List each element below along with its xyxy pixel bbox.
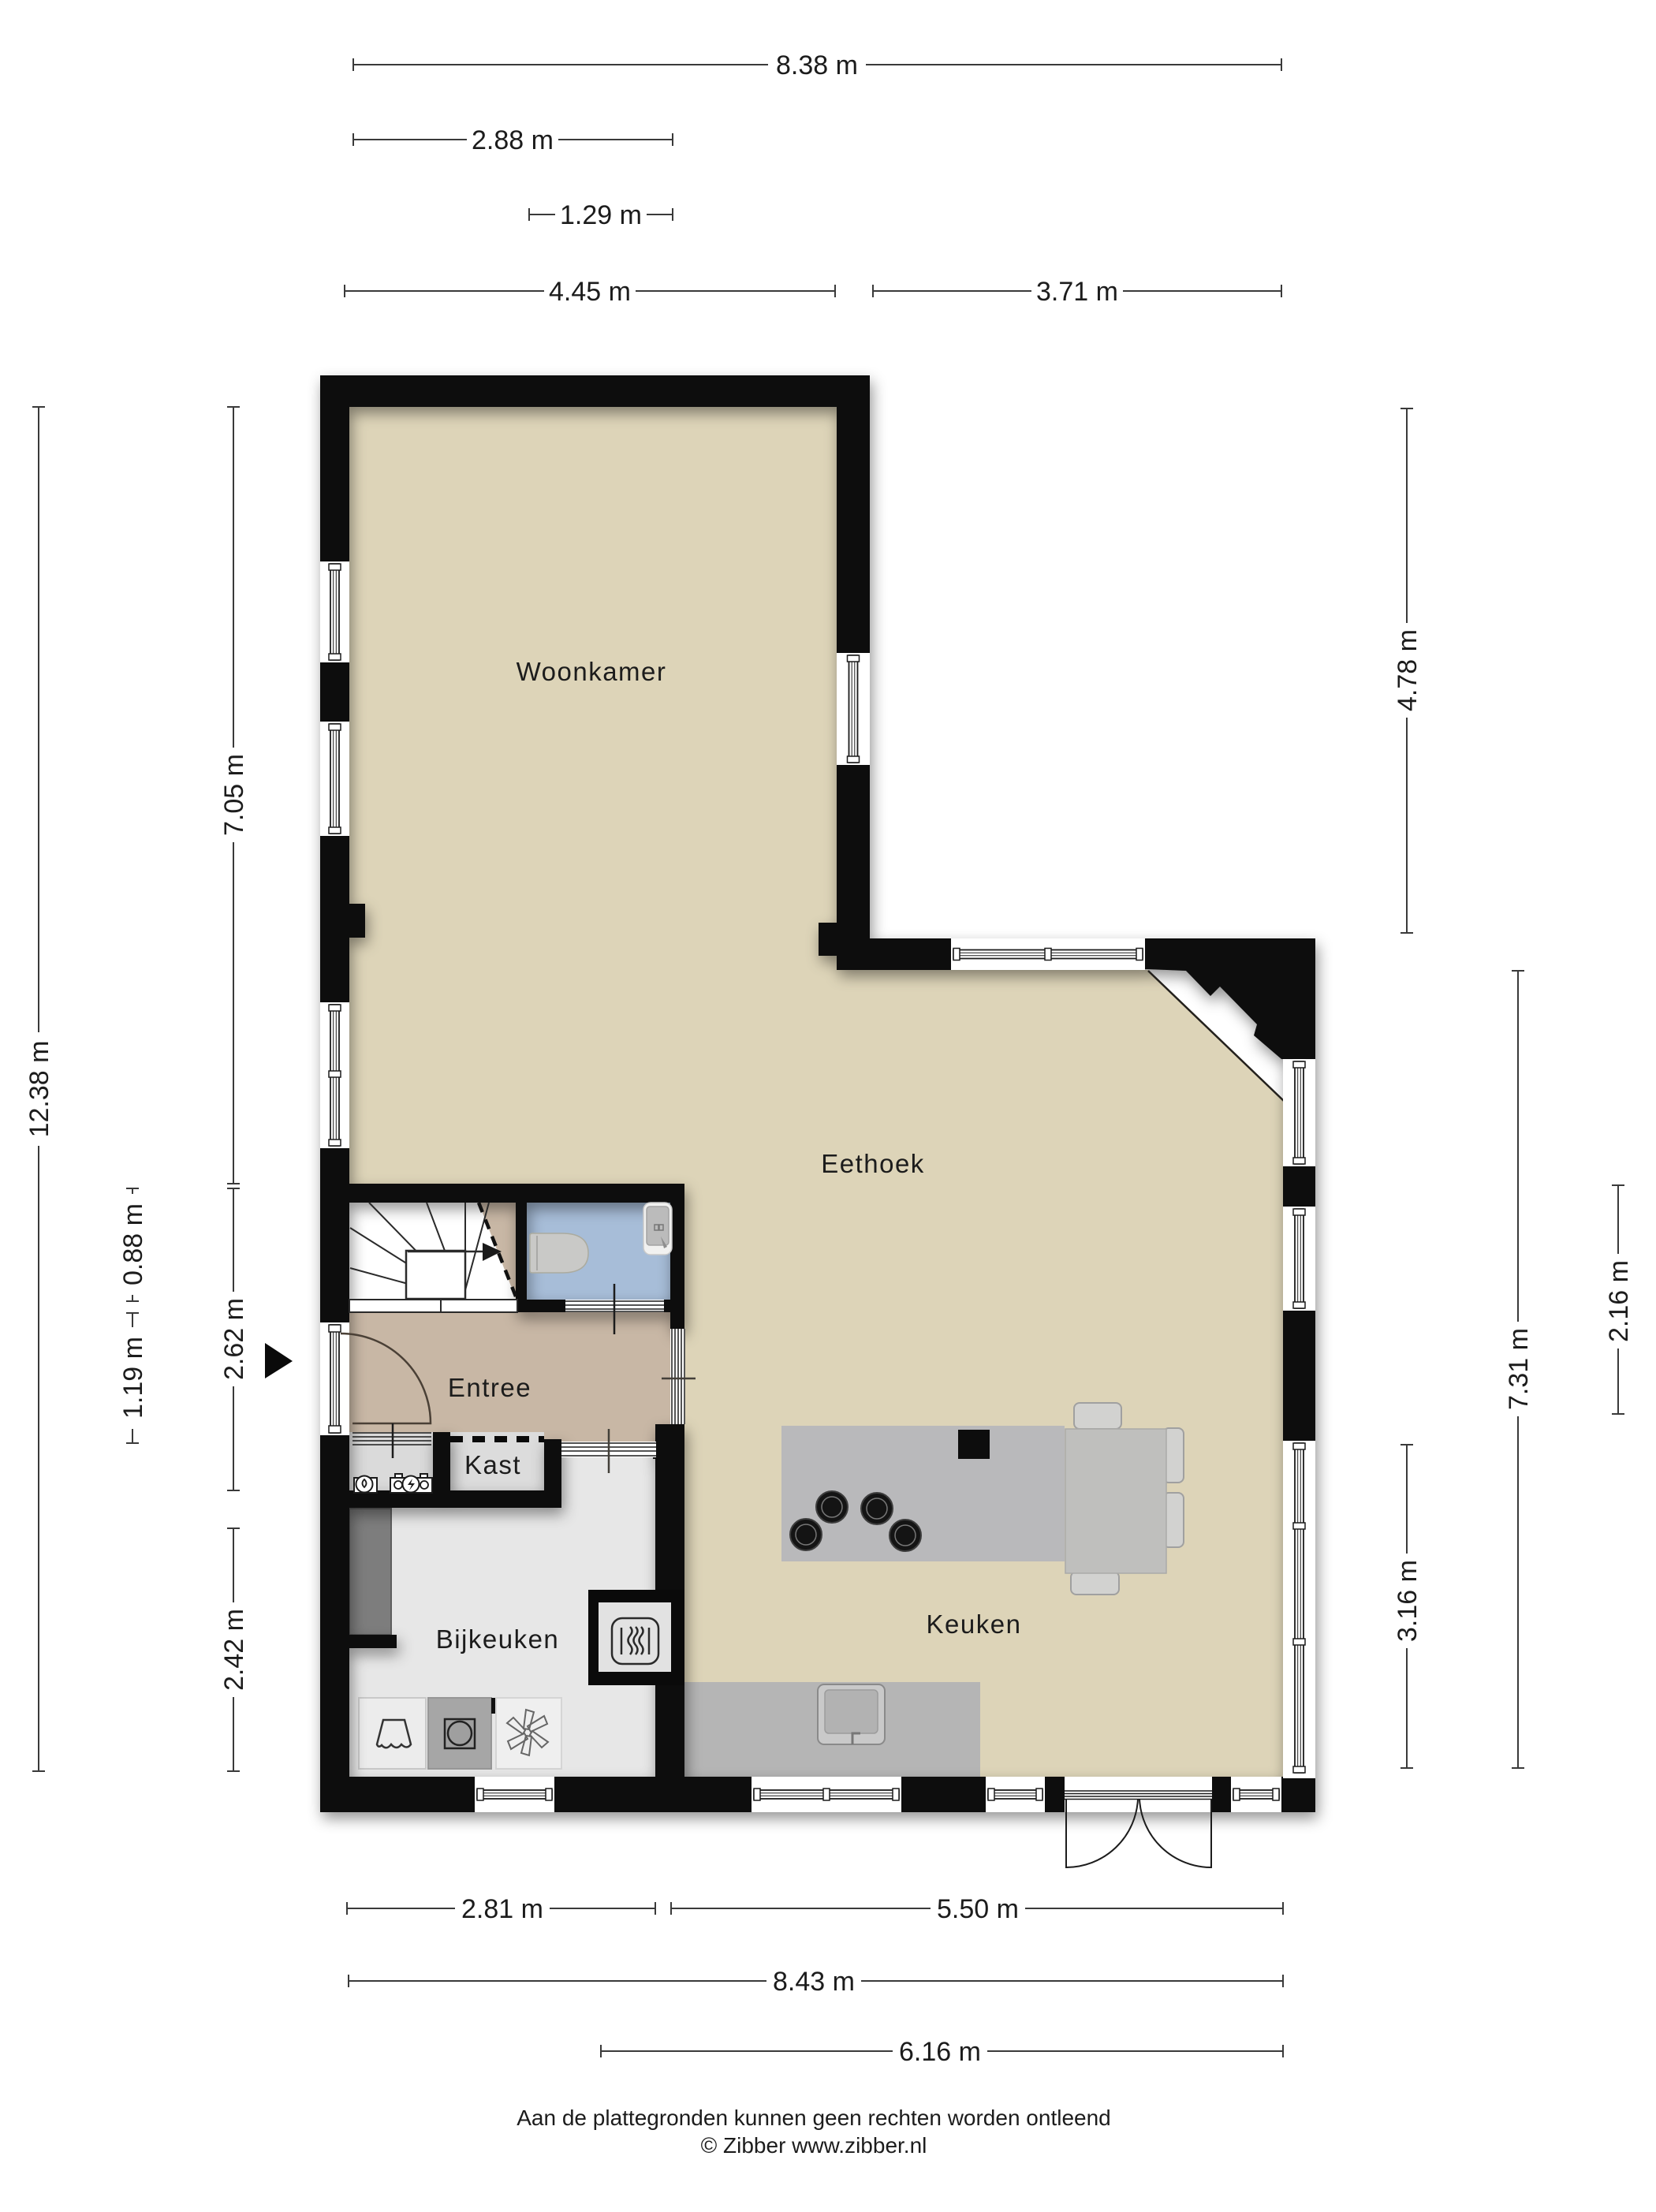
svg-text:3.71 m: 3.71 m (1036, 277, 1118, 307)
svg-text:Aan de plattegronden kunnen ge: Aan de plattegronden kunnen geen rechten… (517, 2106, 1110, 2130)
svg-text:Entree: Entree (448, 1373, 531, 1402)
svg-text:4.78 m: 4.78 m (1393, 629, 1423, 711)
svg-text:12.38 m: 12.38 m (24, 1041, 54, 1138)
svg-text:1.29 m: 1.29 m (560, 200, 642, 230)
svg-text:7.31 m: 7.31 m (1504, 1328, 1534, 1410)
svg-text:1.19 m: 1.19 m (118, 1337, 148, 1419)
svg-text:Woonkamer: Woonkamer (517, 657, 667, 686)
svg-text:2.42 m: 2.42 m (219, 1609, 249, 1691)
svg-text:2.62 m: 2.62 m (219, 1298, 249, 1380)
svg-text:8.38 m: 8.38 m (776, 50, 858, 80)
svg-text:8.43 m: 8.43 m (773, 1967, 855, 1997)
svg-text:6.16 m: 6.16 m (899, 2037, 981, 2067)
svg-text:4.45 m: 4.45 m (549, 277, 631, 307)
svg-text:7.05 m: 7.05 m (219, 754, 249, 836)
svg-text:Kast: Kast (464, 1450, 521, 1479)
svg-text:5.50 m: 5.50 m (937, 1894, 1019, 1924)
svg-text:3.16 m: 3.16 m (1393, 1560, 1423, 1642)
svg-text:Bijkeuken: Bijkeuken (436, 1624, 560, 1654)
svg-text:2.16 m: 2.16 m (1604, 1260, 1634, 1342)
svg-text:2.81 m: 2.81 m (461, 1894, 543, 1924)
svg-text:© Zibber www.zibber.nl: © Zibber www.zibber.nl (701, 2133, 927, 2158)
svg-text:2.88 m: 2.88 m (472, 125, 554, 155)
svg-text:Keuken: Keuken (927, 1610, 1022, 1639)
svg-text:0.88 m: 0.88 m (118, 1203, 148, 1285)
svg-text:Eethoek: Eethoek (821, 1149, 925, 1178)
